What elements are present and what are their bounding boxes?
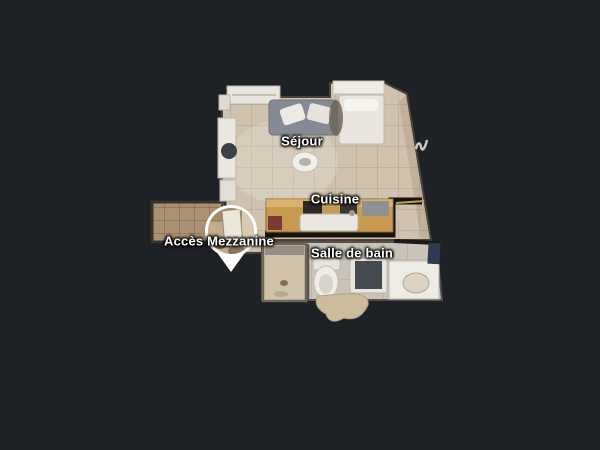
vanity-basin [403, 273, 429, 293]
cabinet-left-bottom [220, 180, 236, 201]
bed-headboard [333, 81, 384, 94]
shower-drain [280, 280, 288, 286]
towel-navy [427, 243, 440, 265]
shower-mat [274, 291, 288, 297]
floorplan-svg[interactable] [0, 0, 600, 450]
bed-pillow [344, 99, 378, 111]
kitchen-red-item [268, 216, 282, 230]
stove [303, 201, 322, 214]
mezzanine-pin[interactable] [205, 205, 258, 272]
bed-side-chair [329, 100, 343, 136]
toilet-seat [319, 274, 333, 294]
kitchen-sink [300, 214, 358, 231]
shower-top-strip [265, 246, 304, 255]
scan-artifact-squiggle [416, 140, 427, 149]
wall-bathroom-top [394, 241, 437, 243]
coffee-table-center [299, 158, 311, 166]
washer-drum [355, 261, 382, 289]
kitchen-appliance [362, 201, 389, 216]
scan-artifact-blob [316, 294, 368, 321]
cabinet-left-top [219, 95, 230, 110]
desk-chair [221, 143, 237, 159]
furniture-kitchen [266, 199, 393, 232]
kitchen-faucet [349, 210, 355, 216]
tour-canvas[interactable]: Séjour Cuisine Accès Mezzanine Salle de … [0, 0, 600, 450]
